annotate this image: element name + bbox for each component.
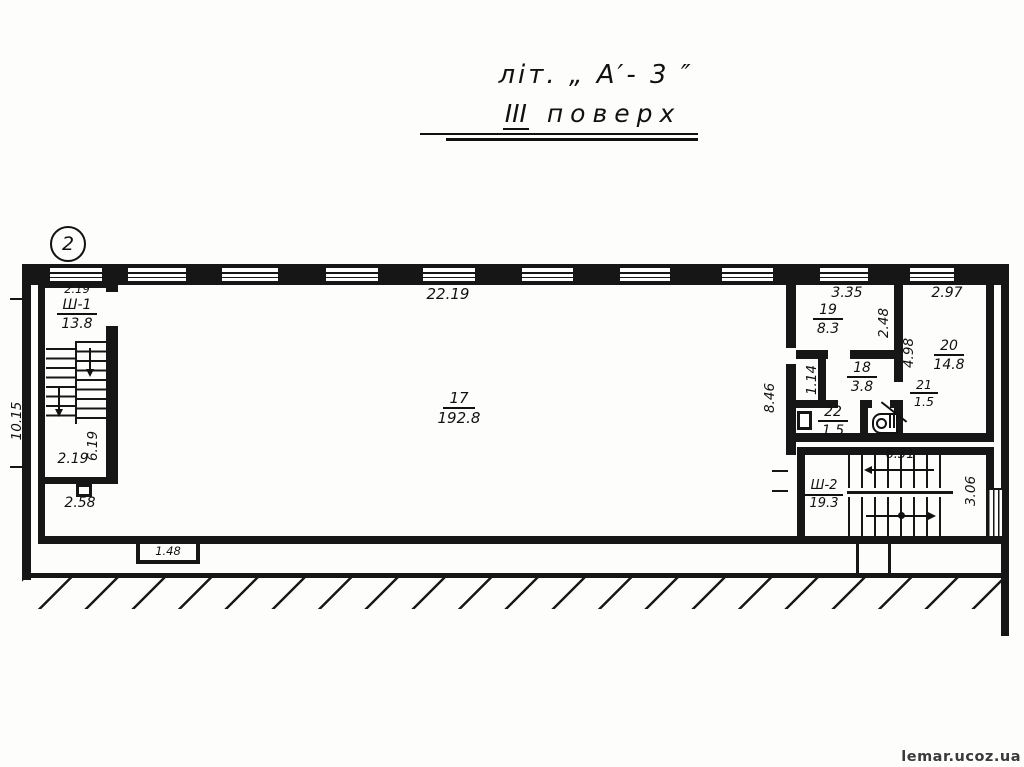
bay-recess: 1.48 — [136, 544, 200, 564]
stair1-label: Ш-1 13.8 — [48, 297, 106, 332]
room-22-area: 1.5 — [822, 422, 844, 439]
stair1-dim-top: 2.19 — [48, 283, 106, 296]
sink-icon — [797, 411, 812, 430]
room-18-number: 18 — [847, 360, 877, 378]
exit-passage-wall — [856, 544, 859, 574]
stair2-name: Ш-2 — [805, 479, 844, 496]
window-icon — [522, 266, 573, 283]
room-22-number: 22 — [818, 404, 848, 422]
stair2-dim-height: 3.06 — [963, 468, 979, 514]
dimension-tick — [10, 298, 23, 300]
room19-dim-height: 2.48 — [876, 299, 892, 347]
wall-south — [38, 536, 1008, 544]
stair2-dim-width: 6.31 — [872, 448, 928, 462]
stair1-wall-bottom — [38, 477, 118, 484]
room-19-number: 19 — [813, 302, 843, 320]
floor-numeral: ІІІ — [503, 99, 529, 130]
stair-direction-arrow — [58, 388, 60, 414]
window-icon — [820, 266, 868, 283]
overall-width-dim: 22.19 — [408, 286, 488, 303]
porch-dim: 2.58 — [50, 496, 110, 511]
title-underline — [420, 133, 698, 135]
room18-dim-height: 1.14 — [804, 358, 820, 402]
room-17-label: 17 192.8 — [428, 390, 490, 428]
dimension-tick — [772, 490, 788, 492]
wall-wc-divider — [860, 408, 868, 435]
stair-direction-arrow — [868, 469, 934, 471]
window-icon — [222, 266, 278, 283]
bay-dim: 1.48 — [155, 544, 181, 558]
window-icon — [128, 266, 186, 283]
room20-dim-width: 2.97 — [912, 286, 982, 301]
stair-arrow-origin-dot — [898, 512, 905, 519]
corridor-dim: 8.46 — [762, 374, 778, 422]
window-icon — [326, 266, 378, 283]
porch-wall-left — [38, 484, 45, 542]
room-18-label: 18 3.8 — [836, 360, 888, 395]
door-opening — [828, 350, 850, 359]
section-marker-number: 2 — [62, 233, 74, 255]
toilet-tank — [889, 415, 891, 428]
stair1-area: 13.8 — [61, 315, 92, 332]
stair2-label: Ш-2 19.3 — [800, 479, 848, 512]
room-18-area: 3.8 — [851, 378, 873, 395]
floor-label: ІІІ поверх — [452, 99, 732, 128]
window-icon — [910, 266, 954, 283]
room-22-label: 22 1.5 — [812, 404, 854, 439]
room-17-area: 192.8 — [438, 409, 481, 427]
room-19-label: 19 8.3 — [802, 302, 854, 337]
window-icon — [620, 266, 670, 283]
room-21-number: 21 — [910, 378, 938, 394]
room-21-area: 1.5 — [914, 394, 934, 409]
wall-room20-right — [986, 285, 994, 437]
room-20-label: 20 14.8 — [920, 338, 978, 373]
room-17-number: 17 — [443, 390, 474, 409]
room-21-label: 21 1.5 — [902, 378, 946, 410]
sink-basin — [800, 414, 809, 427]
stair1-dim-bottom: 2.19 — [44, 452, 102, 467]
wall-hall-right — [786, 285, 796, 455]
toilet-tank — [893, 415, 895, 428]
door-opening — [786, 348, 796, 364]
window-icon — [423, 266, 475, 283]
floor-plan-scan: літ. „ А′- 3 ″ ІІІ поверх 2 2.19 Ш-1 13.… — [0, 0, 1024, 767]
stair1-name: Ш-1 — [57, 297, 98, 315]
overall-height-dim: 10.15 — [9, 397, 27, 445]
floor-word: поверх — [547, 99, 681, 128]
door-opening — [106, 292, 118, 326]
title-underline-2 — [446, 138, 698, 141]
dimension-tick — [10, 466, 23, 468]
room-20-area: 14.8 — [933, 356, 964, 373]
section-marker: 2 — [50, 226, 86, 262]
watermark: lemar.ucoz.ua — [901, 749, 1021, 765]
toilet-bowl — [876, 418, 887, 429]
window-icon — [722, 266, 773, 283]
ground-hatch — [22, 578, 1008, 609]
toilet-icon — [872, 413, 898, 434]
porch-pier-inner — [79, 487, 89, 494]
dimension-tick — [772, 470, 788, 472]
stair-direction-arrow — [89, 348, 91, 374]
room-19-area: 8.3 — [817, 320, 839, 337]
stair2-area: 19.3 — [810, 496, 839, 512]
room20-dim-height: 4.98 — [901, 330, 917, 376]
drawing-title: літ. „ А′- 3 ″ — [468, 60, 724, 90]
room-20-number: 20 — [934, 338, 964, 356]
window-icon — [988, 488, 1002, 538]
stair-flight-divider — [75, 341, 77, 424]
room19-dim-width: 3.35 — [812, 286, 882, 301]
stair-flight-divider — [847, 491, 953, 494]
exit-passage-wall — [888, 544, 891, 574]
stair-treads — [77, 341, 106, 424]
